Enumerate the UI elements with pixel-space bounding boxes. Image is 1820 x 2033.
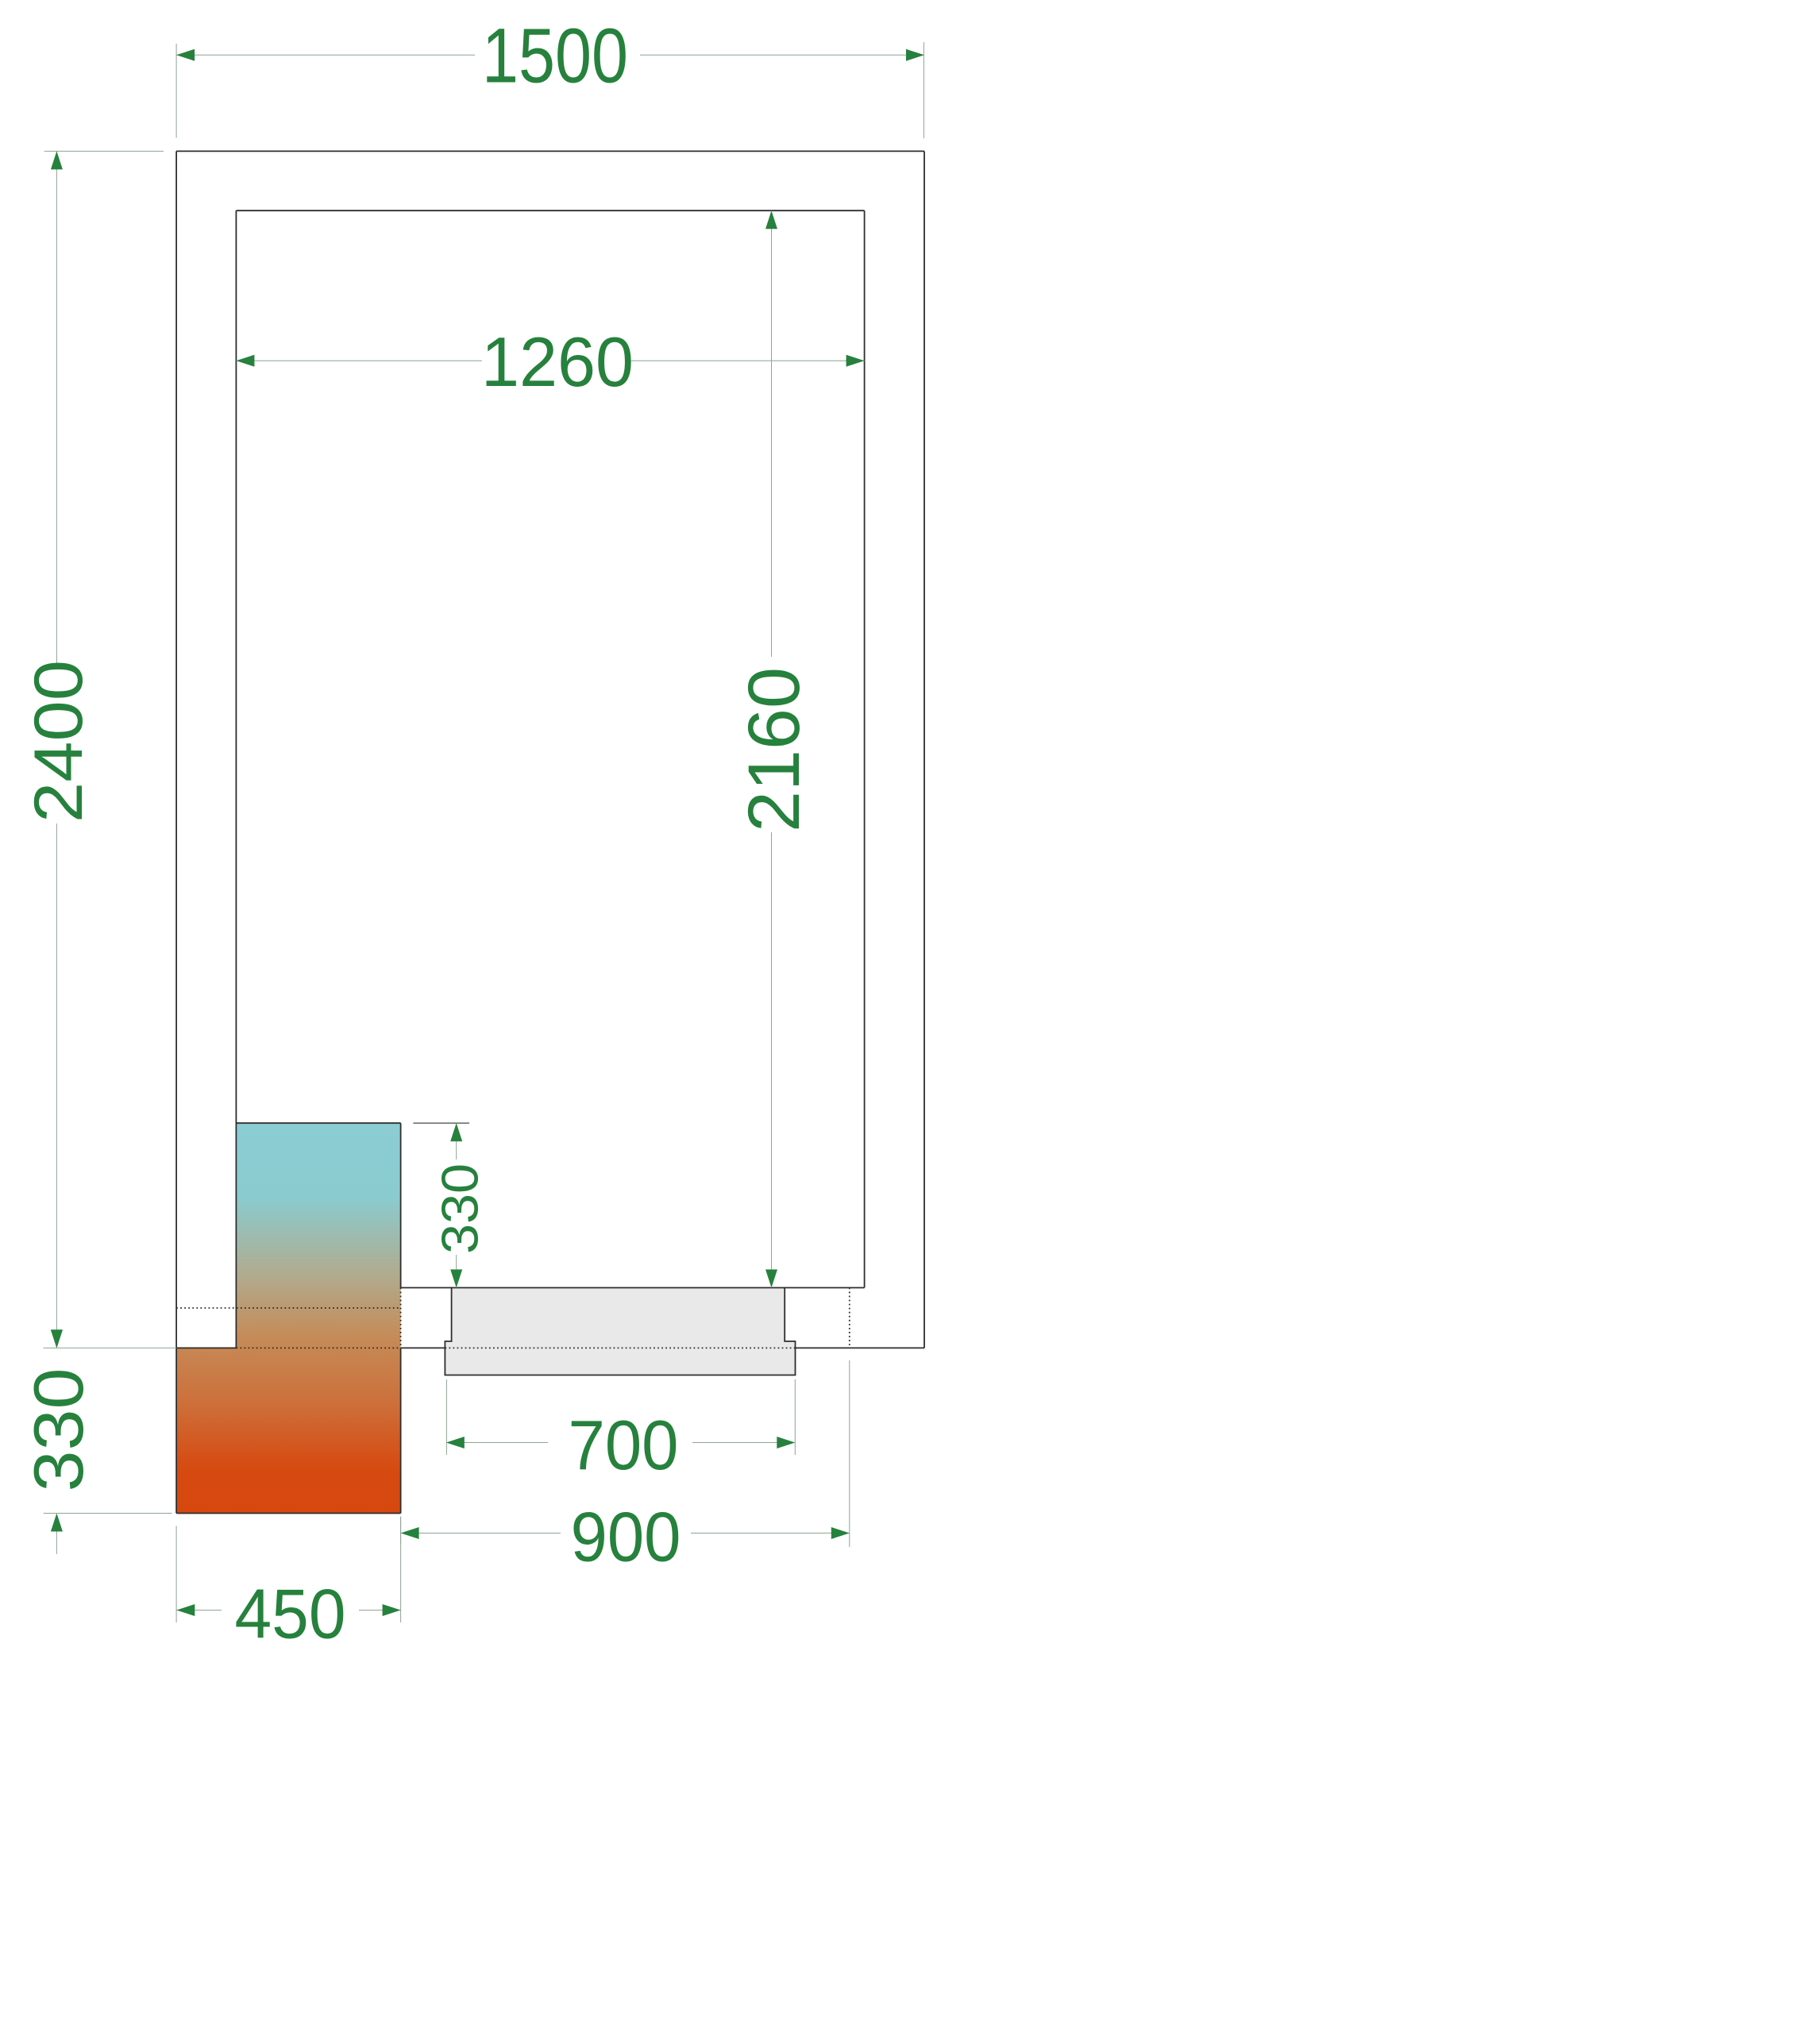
- svg-text:700: 700: [569, 1406, 679, 1484]
- svg-text:1500: 1500: [482, 13, 628, 99]
- svg-text:1260: 1260: [481, 322, 634, 401]
- svg-text:330: 330: [19, 1368, 98, 1492]
- svg-text:450: 450: [235, 1574, 346, 1653]
- svg-text:330: 330: [430, 1163, 488, 1254]
- svg-text:2160: 2160: [734, 667, 815, 832]
- svg-text:900: 900: [571, 1498, 681, 1576]
- svg-text:2400: 2400: [21, 660, 97, 823]
